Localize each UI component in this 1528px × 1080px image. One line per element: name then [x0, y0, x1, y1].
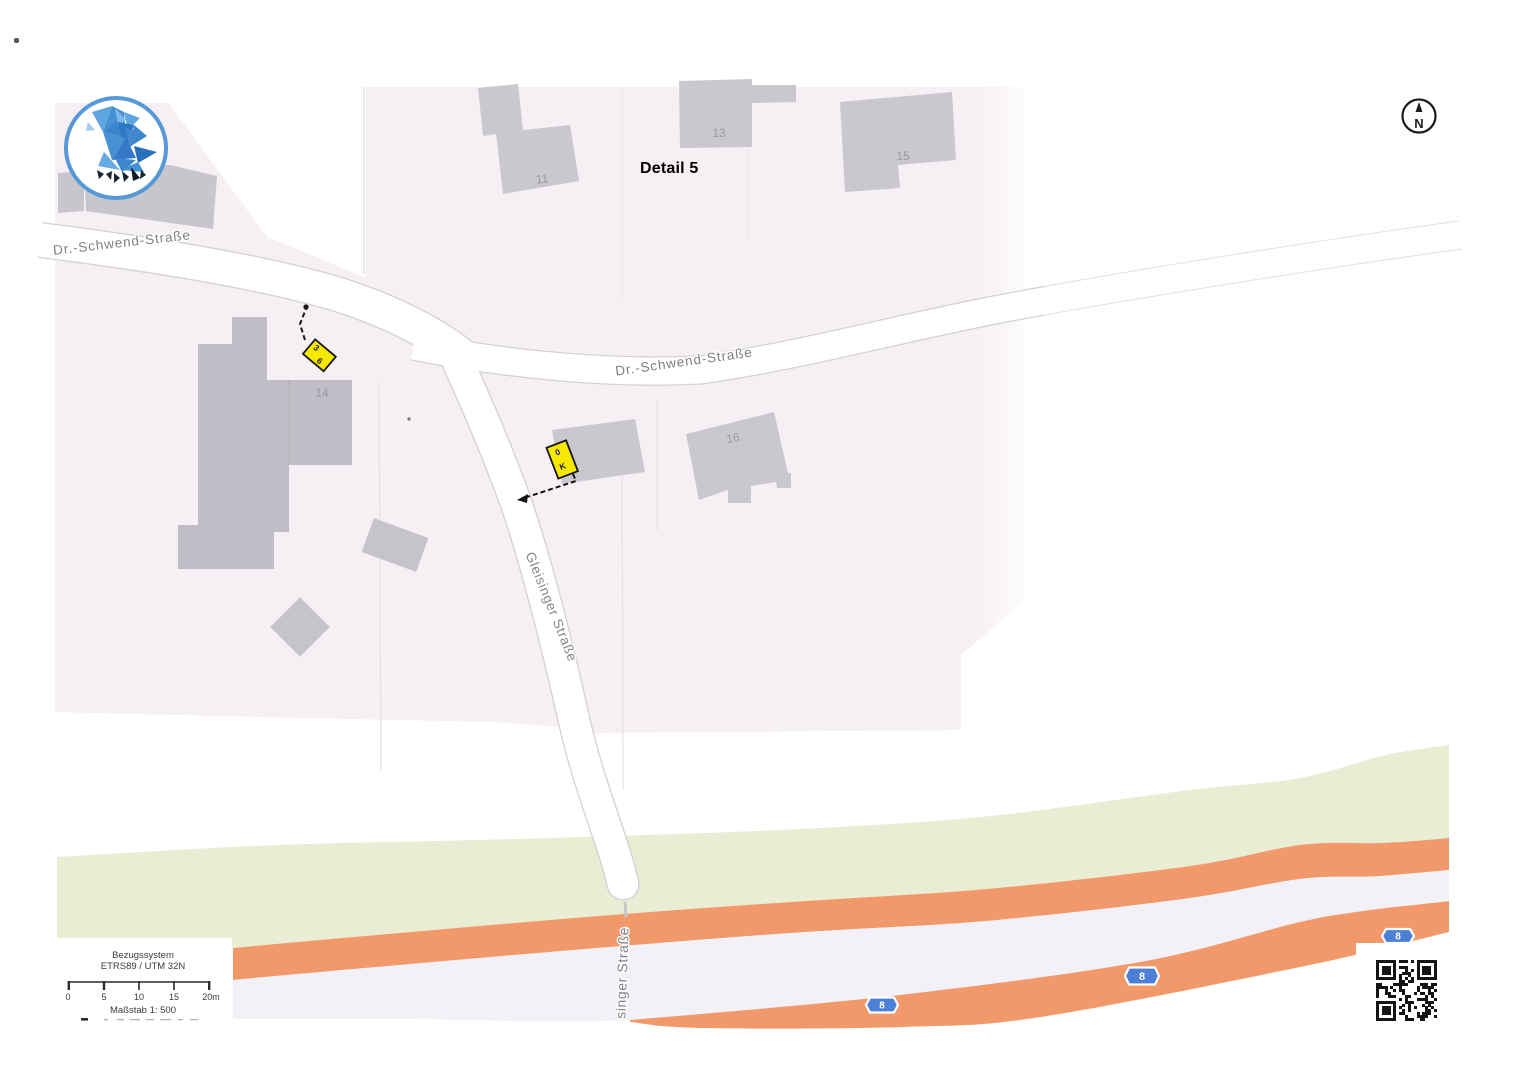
svg-text:0: 0: [65, 992, 70, 1002]
svg-text:ETRS89 / UTM 32N: ETRS89 / UTM 32N: [101, 961, 186, 972]
svg-text:singer Straße: singer Straße: [612, 927, 631, 1019]
svg-text:8: 8: [1139, 971, 1145, 983]
svg-text:11: 11: [535, 171, 549, 186]
svg-text:15: 15: [896, 149, 910, 163]
svg-text:Bezugssystem: Bezugssystem: [112, 950, 174, 961]
svg-text:10: 10: [134, 992, 144, 1002]
svg-text:8: 8: [1395, 932, 1401, 943]
svg-text:15: 15: [169, 992, 179, 1002]
svg-text:Detail 5: Detail 5: [640, 160, 699, 177]
svg-text:8: 8: [879, 1001, 885, 1012]
svg-text:5: 5: [101, 992, 106, 1002]
svg-text:Maßstab 1: 500: Maßstab 1: 500: [110, 1005, 176, 1016]
svg-text:14: 14: [315, 386, 329, 400]
svg-text:N: N: [1414, 116, 1423, 131]
svg-text:16: 16: [725, 430, 741, 446]
svg-text:13: 13: [712, 126, 726, 140]
svg-text:20m: 20m: [202, 992, 220, 1002]
